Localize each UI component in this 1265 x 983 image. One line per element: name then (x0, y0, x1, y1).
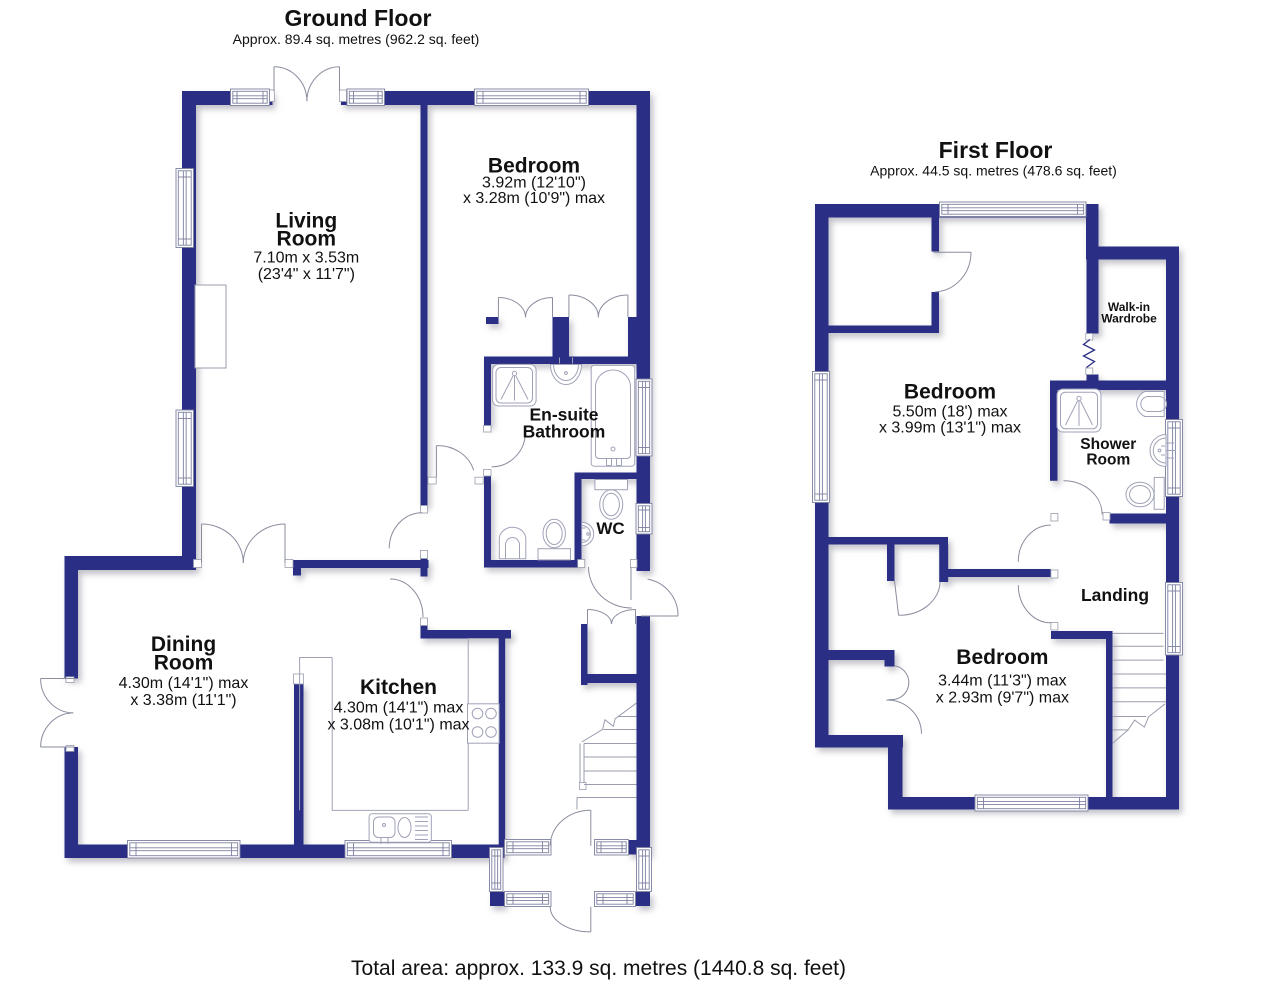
svg-text:(23'4" x 11'7"): (23'4" x 11'7") (258, 266, 355, 283)
svg-text:Approx. 89.4 sq. metres (962.2: Approx. 89.4 sq. metres (962.2 sq. feet) (233, 31, 480, 47)
svg-text:Bedroom: Bedroom (956, 646, 1048, 669)
svg-text:Bathroom: Bathroom (523, 422, 606, 442)
svg-text:4.30m (14'1") max: 4.30m (14'1") max (119, 675, 249, 692)
svg-text:Shower: Shower (1080, 436, 1136, 453)
svg-text:WC: WC (596, 519, 624, 538)
svg-text:x 2.93m (9'7") max: x 2.93m (9'7") max (936, 690, 1069, 707)
svg-text:Room: Room (277, 227, 337, 250)
svg-text:7.10m x 3.53m: 7.10m x 3.53m (253, 250, 359, 267)
svg-text:x 3.28m (10'9") max: x 3.28m (10'9") max (463, 190, 605, 207)
svg-text:Ground Floor: Ground Floor (285, 5, 432, 31)
svg-text:First Floor: First Floor (939, 137, 1053, 163)
svg-text:Room: Room (154, 652, 214, 675)
svg-text:x 3.99m (13'1") max: x 3.99m (13'1") max (879, 420, 1021, 437)
svg-text:Bedroom: Bedroom (904, 381, 996, 404)
svg-text:x 3.08m (10'1") max: x 3.08m (10'1") max (327, 717, 469, 734)
svg-text:3.92m (12'10"): 3.92m (12'10") (482, 175, 586, 192)
svg-text:5.50m (18') max: 5.50m (18') max (892, 404, 1007, 421)
svg-text:Wardrobe: Wardrobe (1101, 312, 1157, 326)
svg-text:x 3.38m (11'1"): x 3.38m (11'1") (130, 692, 236, 709)
svg-text:Total area: approx. 133.9 sq.: Total area: approx. 133.9 sq. metres (14… (351, 957, 846, 980)
svg-text:Room: Room (1086, 452, 1130, 469)
svg-text:3.44m (11'3") max: 3.44m (11'3") max (938, 673, 1066, 690)
svg-text:Approx. 44.5 sq. metres (478.6: Approx. 44.5 sq. metres (478.6 sq. feet) (870, 163, 1117, 179)
svg-text:4.30m (14'1") max: 4.30m (14'1") max (334, 700, 464, 717)
svg-text:Landing: Landing (1081, 585, 1149, 605)
svg-text:Kitchen: Kitchen (360, 676, 437, 699)
